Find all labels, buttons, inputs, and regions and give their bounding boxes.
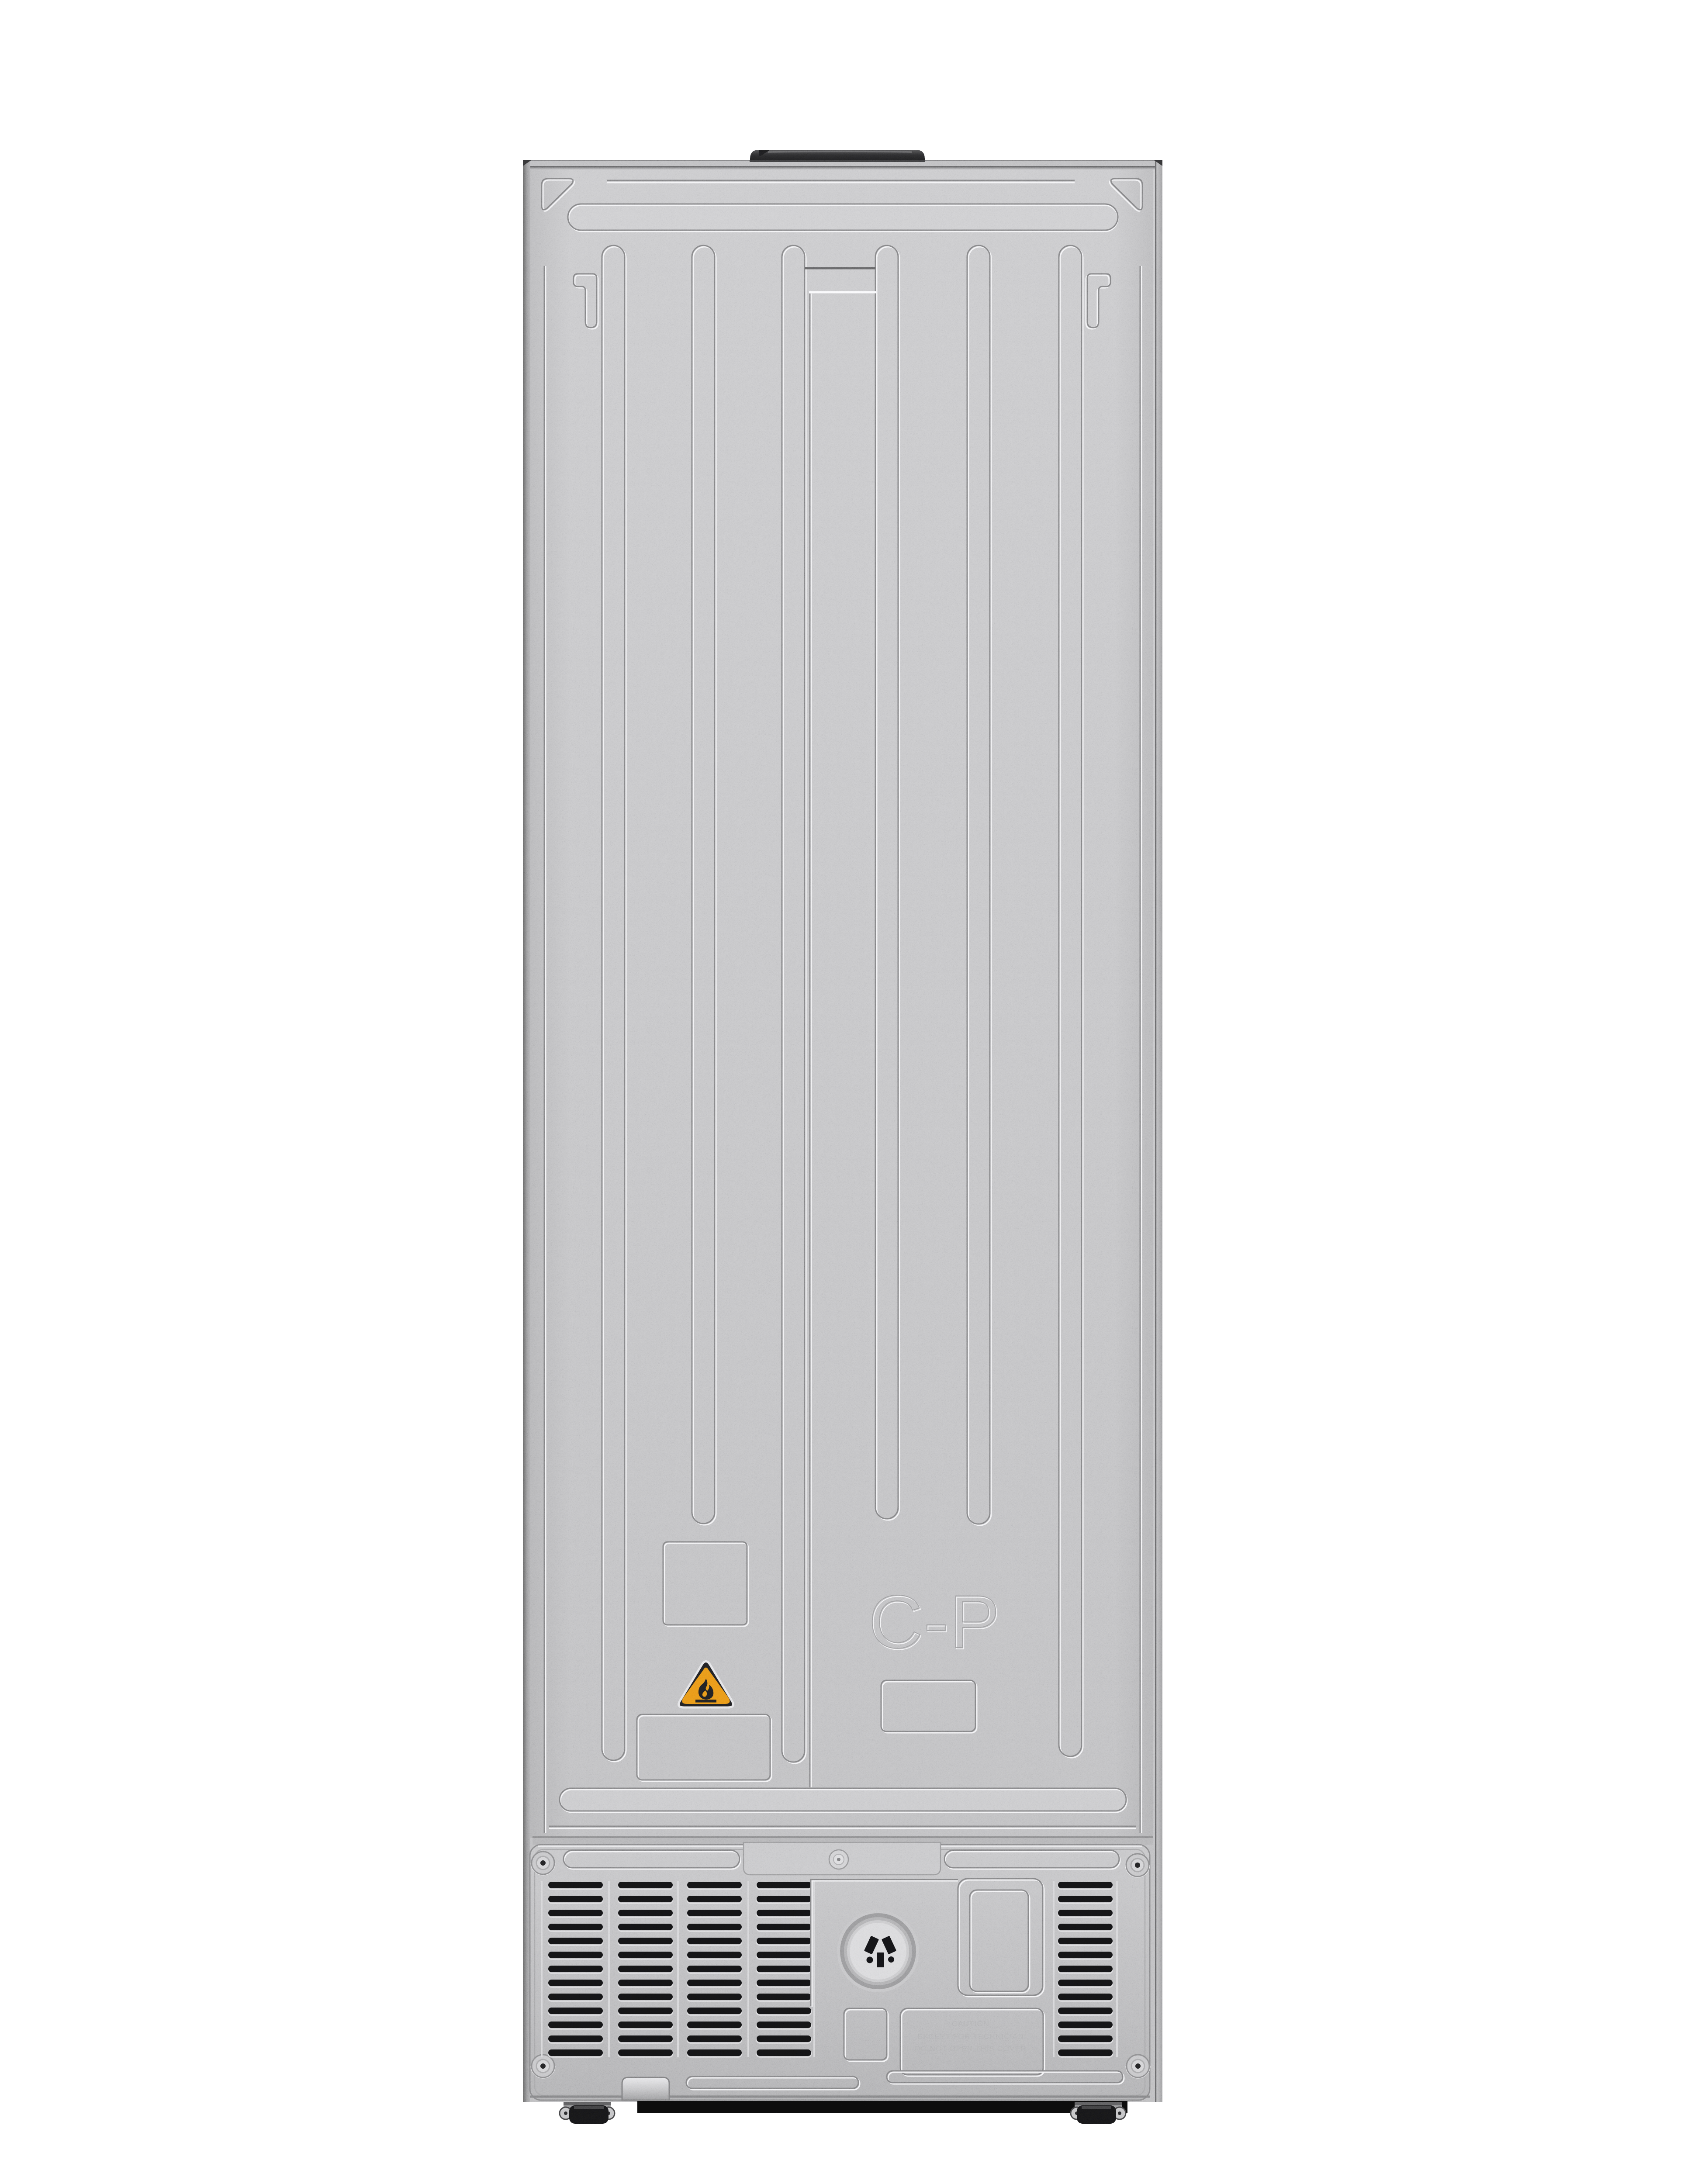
- svg-text:C-P: C-P: [868, 1580, 1000, 1664]
- svg-text:EXCEPT FOR TECHNICIAN: EXCEPT FOR TECHNICIAN: [917, 2032, 1024, 2041]
- svg-text:DO NOT OPEN THIS COVER: DO NOT OPEN THIS COVER: [915, 2044, 1027, 2053]
- svg-text:CAUTION: CAUTION: [952, 2019, 989, 2028]
